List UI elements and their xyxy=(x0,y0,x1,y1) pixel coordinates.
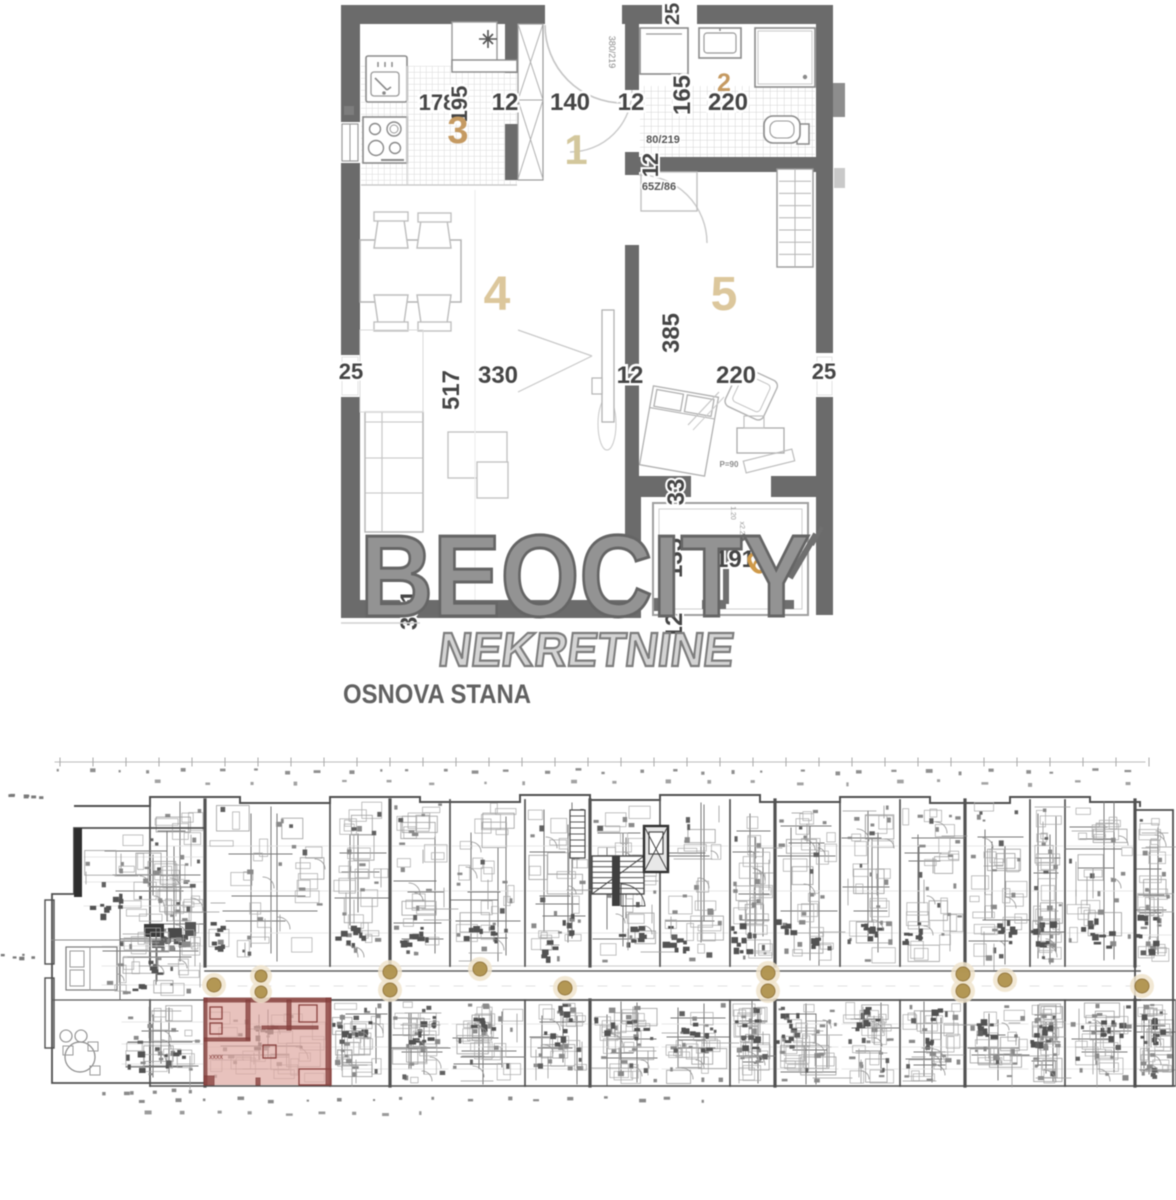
svg-text:330: 330 xyxy=(478,362,518,389)
svg-text:165: 165 xyxy=(669,75,696,115)
svg-text:80/219: 80/219 xyxy=(646,134,680,146)
svg-text:BEOCITY: BEOCITY xyxy=(360,511,810,641)
svg-text:25: 25 xyxy=(662,3,684,25)
svg-text:P=90: P=90 xyxy=(720,460,739,469)
svg-text:1: 1 xyxy=(564,126,587,173)
svg-text:2: 2 xyxy=(717,69,731,97)
svg-text:25: 25 xyxy=(339,359,363,384)
svg-text:12: 12 xyxy=(492,89,519,116)
svg-text:12: 12 xyxy=(618,89,645,116)
svg-text:5: 5 xyxy=(711,268,738,321)
svg-text:12: 12 xyxy=(638,153,663,177)
svg-text:NEKRETNINE: NEKRETNINE xyxy=(436,623,738,677)
svg-text:140: 140 xyxy=(550,89,590,116)
svg-text:xxxx: xxxx xyxy=(209,1054,224,1061)
svg-text:517: 517 xyxy=(438,370,465,410)
svg-text:33: 33 xyxy=(663,479,690,506)
svg-text:385: 385 xyxy=(658,313,685,353)
svg-text:4: 4 xyxy=(484,268,511,321)
svg-text:220: 220 xyxy=(716,362,756,389)
svg-text:65Z/86: 65Z/86 xyxy=(642,181,676,193)
svg-text:25: 25 xyxy=(812,359,836,384)
svg-text:OSNOVA STANA: OSNOVA STANA xyxy=(343,679,531,709)
svg-text:3: 3 xyxy=(447,110,468,152)
svg-text:380/219: 380/219 xyxy=(607,36,617,69)
svg-text:12: 12 xyxy=(617,362,644,389)
